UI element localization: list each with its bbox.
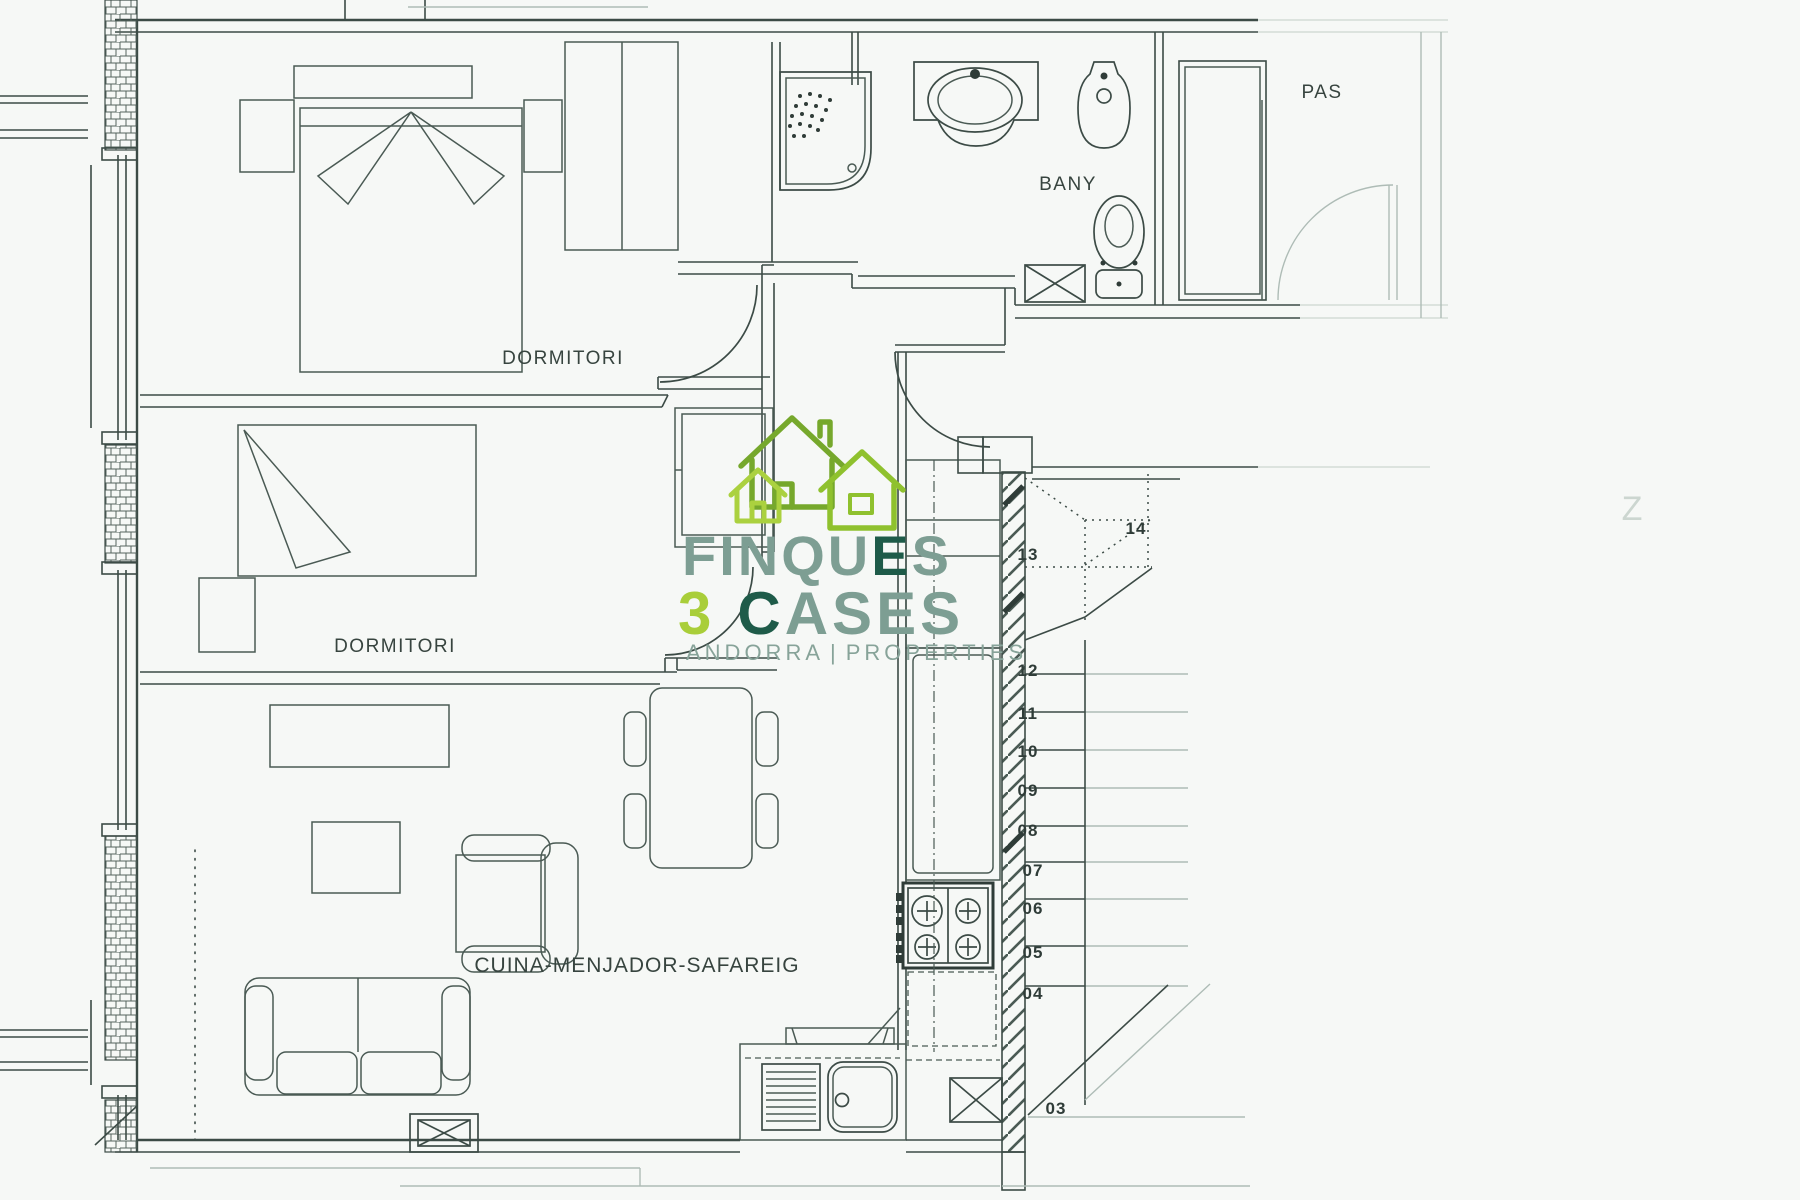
headboard-shelf	[294, 66, 472, 98]
logo-houses-icon	[731, 418, 903, 528]
fridge	[906, 648, 1000, 880]
staircase: 14 13 12 11 10 09 08 07 06 05 04 03	[958, 437, 1430, 1190]
shower-head-dots	[788, 92, 832, 138]
step-label: 06	[1023, 899, 1044, 918]
step-label: 05	[1023, 943, 1044, 962]
stair-numbers: 14 13 12 11 10 09 08 07 06 05 04 03	[1018, 519, 1147, 1118]
corridor-door-arc	[1278, 185, 1393, 300]
washbasin	[914, 62, 1038, 146]
logo-brand-line1: FINQUES	[682, 524, 952, 587]
logo-text: E	[871, 524, 911, 587]
logo-watermark: FINQUES 3CASES ANDORRA|PROPERTIES	[678, 418, 1027, 665]
dining-chair	[624, 794, 646, 848]
stove	[896, 883, 993, 968]
kitchen-units	[740, 352, 1000, 1140]
window-x-box	[410, 1114, 478, 1152]
step-label: 13	[1018, 545, 1039, 564]
coffee-table	[312, 822, 400, 893]
logo-text: ASES	[785, 580, 964, 647]
step-label: 04	[1023, 984, 1044, 1003]
logo-text: FINQU	[682, 524, 871, 587]
entry-door-arc	[895, 352, 990, 447]
toilet	[1094, 196, 1144, 298]
bedroom1-furniture	[240, 42, 678, 372]
logo-brand-line2: 3CASES	[678, 580, 964, 647]
shower	[780, 72, 871, 190]
step-label: 11	[1018, 704, 1038, 723]
dining-chair	[756, 712, 778, 766]
nightstand	[524, 100, 562, 172]
shaft-x-kitchen	[950, 1078, 1002, 1122]
shaft-x-bath	[1025, 265, 1085, 302]
corridor-closet	[1179, 61, 1266, 300]
floor-plan-drawing: 14 13 12 11 10 09 08 07 06 05 04 03	[0, 0, 1800, 1200]
step-label: 09	[1018, 781, 1039, 800]
nightstand	[199, 578, 255, 652]
logo-text: ANDORRA	[686, 640, 824, 665]
house-icon-light	[731, 470, 785, 521]
stair-dotted-lines	[1025, 474, 1152, 620]
room-label-bedroom1: DORMITORI	[502, 348, 624, 369]
room-labels: DORMITORI DORMITORI BANY PAS CUINA-MENJA…	[334, 82, 1642, 977]
kitchen-sink	[740, 1028, 1000, 1140]
sofa	[245, 978, 470, 1095]
floorplan-page: 14 13 12 11 10 09 08 07 06 05 04 03	[0, 0, 1800, 1200]
room-label-bedroom2: DORMITORI	[334, 636, 456, 657]
dining-set	[624, 688, 778, 868]
bed-pillow	[244, 430, 350, 568]
dishwasher-dashed	[908, 972, 996, 1046]
logo-text: |	[830, 640, 840, 665]
living-furniture	[195, 688, 778, 1140]
dining-chair	[624, 712, 646, 766]
hatched-wall	[1002, 472, 1025, 1152]
logo-text: C	[737, 580, 784, 647]
armchair	[456, 835, 578, 972]
bidet	[1078, 62, 1130, 148]
step-label: 03	[1046, 1099, 1067, 1118]
dining-table	[650, 688, 752, 868]
logo-tagline: ANDORRA|PROPERTIES	[686, 640, 1027, 665]
logo-text: 3	[678, 580, 715, 647]
step-label: 08	[1018, 821, 1039, 840]
step-label: 14	[1126, 519, 1147, 538]
logo-text: PROPERTIES	[846, 640, 1027, 665]
room-label-bathroom: BANY	[1039, 174, 1097, 195]
step-label: 07	[1023, 861, 1044, 880]
room-label-corridor: PAS	[1301, 82, 1342, 103]
logo-text: S	[912, 524, 952, 587]
scan-artifact: Z	[1622, 490, 1643, 528]
bedroom1-door-arc	[660, 285, 757, 382]
single-bed	[238, 425, 476, 576]
step-label: 10	[1018, 742, 1039, 761]
double-bed	[300, 108, 522, 372]
nightstand	[240, 100, 294, 172]
sideboard	[270, 705, 449, 767]
room-label-living: CUINA-MENJADOR-SAFAREIG	[474, 954, 799, 977]
dining-chair	[756, 794, 778, 848]
